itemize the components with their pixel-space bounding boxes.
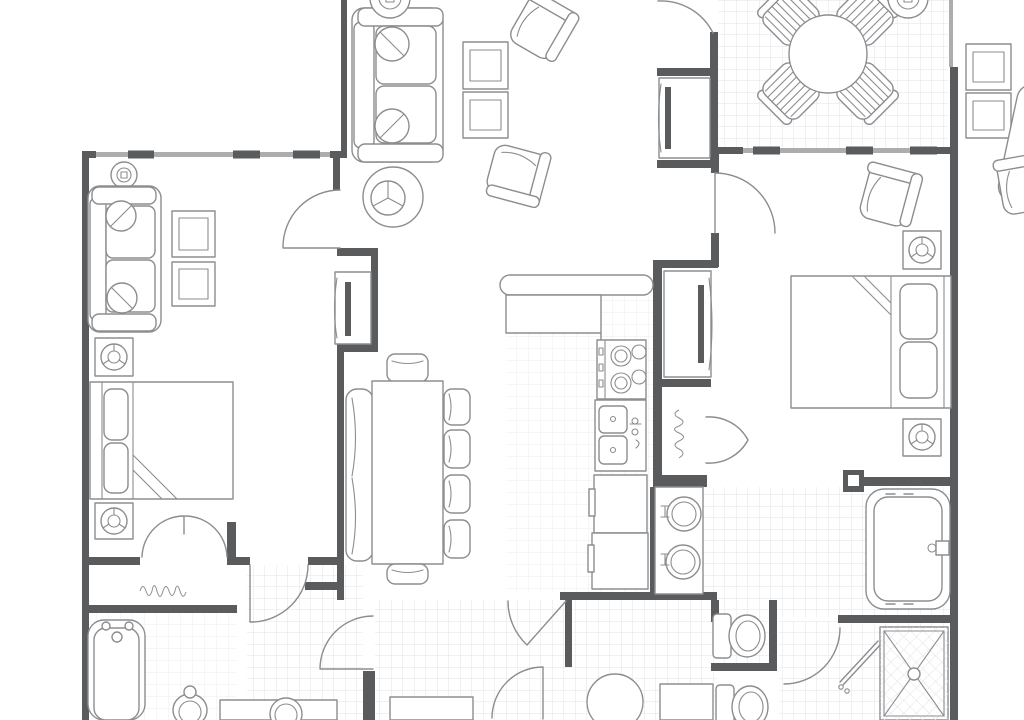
bathtub [88, 620, 145, 720]
bifold-closet-doors [142, 516, 227, 557]
wall [363, 671, 375, 720]
wall [82, 557, 140, 565]
nightstand-speaker [95, 503, 133, 539]
utility-closet-note [675, 410, 684, 458]
tv-screen [698, 285, 704, 363]
wall [337, 344, 378, 352]
armchair [483, 140, 552, 209]
wall [769, 600, 777, 663]
armchair [992, 151, 1024, 216]
living-area [352, 0, 710, 227]
wall [82, 605, 237, 613]
nesting-tables [463, 42, 508, 138]
tub-faucet [936, 541, 949, 555]
long-dining-table [372, 381, 443, 564]
window-mullion [846, 147, 873, 155]
nightstand-speaker [95, 338, 133, 376]
bed [90, 382, 233, 499]
wall-column-core [848, 475, 859, 486]
wall [565, 600, 572, 667]
door-bedroom-right [715, 173, 775, 233]
table-chair [387, 354, 428, 382]
round-lamp-table [363, 167, 423, 227]
window-band [949, 0, 953, 67]
wall [337, 248, 378, 256]
wall [936, 147, 952, 154]
bifold-pantry-doors [706, 417, 748, 463]
wall [308, 557, 342, 565]
side-seating-area [966, 44, 1024, 216]
tv-screen [665, 87, 671, 149]
console [660, 684, 713, 720]
shower-drain [908, 668, 920, 680]
toilet [716, 685, 768, 720]
window-mullion [128, 151, 154, 159]
wall [710, 32, 718, 168]
wall [662, 379, 711, 387]
double-vanity [655, 487, 703, 594]
wall [653, 260, 662, 487]
counter-return [506, 295, 601, 333]
bench [346, 389, 373, 561]
refrigerator [589, 475, 647, 533]
table-chair [444, 475, 470, 513]
pillow [104, 389, 128, 440]
window-mullion [910, 147, 937, 155]
wall [227, 522, 236, 557]
armchair [855, 161, 924, 230]
door-bedroom-left [283, 190, 340, 248]
sofa [352, 8, 443, 162]
wall [655, 475, 707, 487]
tv-console-bedroom-right [664, 271, 712, 377]
wall [333, 151, 340, 190]
jetted-tub [866, 489, 950, 609]
wall [305, 582, 342, 590]
tub-spout [112, 632, 122, 642]
cabinet [588, 533, 648, 589]
toilet [713, 614, 765, 658]
wall-speaker-icon [111, 162, 137, 188]
great-room-table [346, 354, 470, 584]
window-mullion [233, 151, 260, 159]
door-arc-living-entry [658, 1, 713, 33]
wall [341, 0, 347, 152]
cooktop [597, 340, 646, 399]
table-chair [444, 520, 470, 558]
shower-stall [880, 627, 948, 720]
wall [715, 147, 743, 154]
pillow [900, 342, 937, 398]
wall-frames [172, 211, 215, 306]
pillow [900, 284, 937, 339]
wall [657, 68, 711, 76]
pillow [104, 443, 128, 493]
tv-console-bedroom-left [335, 272, 372, 344]
window-mullion [753, 147, 780, 155]
table-chair [387, 564, 428, 584]
floor-plan [0, 0, 1024, 720]
wall [227, 557, 250, 565]
sofa-back [354, 22, 374, 148]
armchair [504, 0, 580, 65]
wall [860, 477, 955, 486]
wall [653, 260, 718, 268]
bench [390, 697, 473, 720]
wall [838, 615, 952, 623]
table-chair [444, 430, 470, 468]
fridge-handle [589, 489, 595, 516]
bed [791, 276, 951, 408]
breakfast-bar [500, 275, 653, 295]
table-chair [444, 389, 470, 425]
speaker-panel [903, 231, 941, 269]
bedroom-right [664, 161, 951, 456]
kitchen-sink [595, 400, 646, 471]
wall [657, 160, 718, 168]
wall [711, 154, 719, 173]
laundry-closet-note [140, 586, 186, 597]
sofa-arm [358, 144, 443, 162]
loveseat [88, 186, 161, 332]
wall [371, 256, 378, 352]
tv-screen [345, 282, 351, 336]
wall [711, 663, 777, 671]
vanity-sink [220, 698, 337, 720]
round-dining-table [789, 15, 867, 93]
tv-console-living [659, 78, 711, 158]
speaker-panel [903, 419, 941, 456]
window-mullion [293, 151, 320, 159]
